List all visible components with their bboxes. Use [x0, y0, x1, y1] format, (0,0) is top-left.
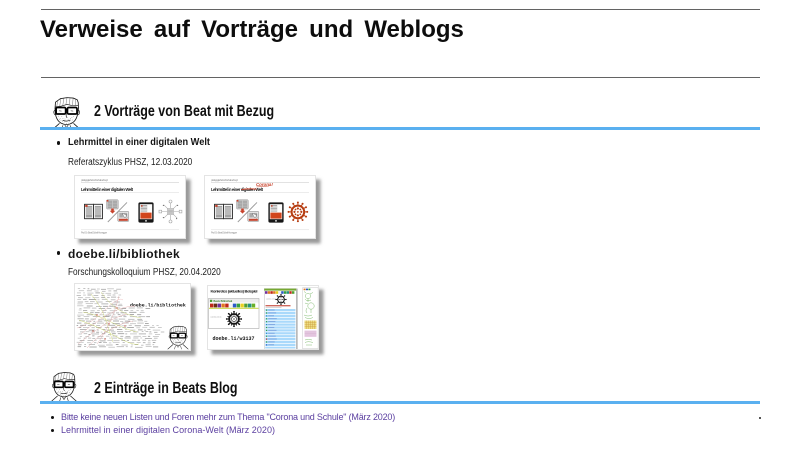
svg-text:Konkretes (aktuelles) Beispiel: Konkretes (aktuelles) Beispiel	[210, 288, 257, 293]
svg-text:pädagogische hochschule schwyz: pädagogische hochschule schwyz	[211, 178, 239, 182]
svg-text:Prof. Dr. Beat Döbeli Honegger: Prof. Dr. Beat Döbeli Honegger	[81, 231, 107, 234]
svg-text:Prof. Dr. Beat Döbeli Honegger: Prof. Dr. Beat Döbeli Honegger	[211, 231, 237, 234]
svg-text:pädagogische hochschule schwyz: pädagogische hochschule schwyz	[81, 178, 109, 182]
svg-text:Beats Bibliothek: Beats Bibliothek	[213, 300, 232, 303]
svg-text:doebe.li/w3137: doebe.li/w3137	[212, 336, 254, 342]
svg-text:Lehrmittel in einer digitalen: Lehrmittel in einer digitalen Welt	[81, 187, 134, 192]
svg-text:corona virus: corona virus	[266, 298, 276, 300]
svg-text:corona virus: corona virus	[210, 316, 221, 318]
